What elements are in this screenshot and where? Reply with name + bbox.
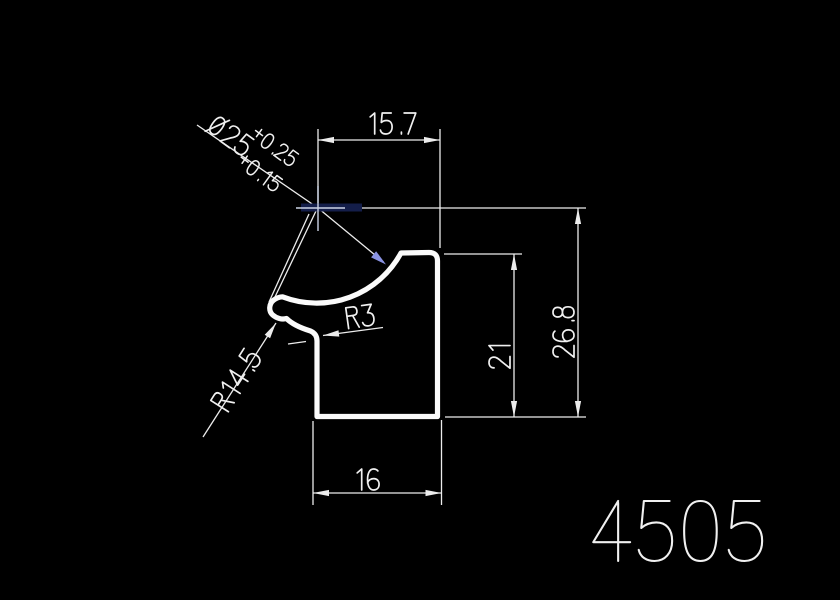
glyph-1 [489, 346, 510, 351]
glyph-plus [253, 127, 265, 139]
dimension-bottom-width-label[interactable] [357, 469, 379, 490]
glyph-dot [258, 179, 259, 180]
dimension-top-width[interactable] [318, 113, 440, 248]
dimension-overall-height-label[interactable] [553, 307, 574, 357]
dimension-bottom-width[interactable] [313, 420, 442, 505]
glyph-8 [553, 307, 574, 318]
glyph-dot [272, 153, 273, 154]
drawing-number[interactable] [593, 501, 762, 561]
arrowhead-left [318, 137, 334, 143]
arrowhead-top [575, 208, 581, 224]
dimension-body-height[interactable] [444, 254, 522, 417]
glyph-1 [357, 469, 362, 490]
arrowhead [265, 323, 276, 338]
profile-outline[interactable] [270, 253, 438, 417]
dimension-body-height-label[interactable] [489, 346, 510, 369]
radius-line[interactable] [269, 214, 309, 302]
glyph-R [346, 306, 359, 328]
glyph-6 [368, 469, 380, 490]
snap-crosshair [296, 186, 362, 231]
leader-tail[interactable] [288, 342, 306, 345]
glyph-6 [553, 330, 574, 342]
glyph-5 [639, 501, 672, 561]
arrowhead-top [511, 254, 517, 270]
arrowhead-right [424, 137, 440, 143]
arrowhead-bottom [575, 401, 581, 417]
radius-line[interactable] [274, 211, 316, 299]
glyph-dot [253, 370, 255, 371]
glyph-5 [729, 501, 762, 561]
arrowhead [323, 330, 339, 336]
fillet-radius-label[interactable] [346, 304, 375, 328]
leader-line[interactable] [203, 323, 276, 437]
diameter-label-block[interactable] [200, 102, 301, 193]
tolerance-lower-label [236, 152, 283, 192]
dimension-flange-radius[interactable] [203, 323, 276, 437]
drawing-canvas[interactable] [0, 0, 840, 600]
glyph-5 [380, 113, 392, 134]
dimension-top-width-label[interactable] [370, 113, 416, 134]
arrowhead-left [313, 490, 329, 496]
glyph-0 [684, 501, 717, 561]
glyph-Ø [205, 113, 229, 139]
glyph-4 [593, 501, 630, 561]
glyph-1 [370, 113, 375, 134]
cad-viewport[interactable]: 4505 15.7 16 26.8 21 Ø25 +0.25 +0.15 R3 … [0, 0, 840, 600]
glyph-2 [489, 357, 510, 369]
glyph-2 [274, 143, 290, 161]
glyph-2 [553, 346, 574, 358]
dimension-diameter[interactable] [197, 102, 386, 302]
dimension-fillet-radius[interactable] [288, 304, 383, 344]
glyph-7 [404, 113, 416, 134]
arrowhead-bottom [511, 401, 517, 417]
arrowhead-right [426, 490, 442, 496]
glyph-3 [360, 304, 375, 326]
